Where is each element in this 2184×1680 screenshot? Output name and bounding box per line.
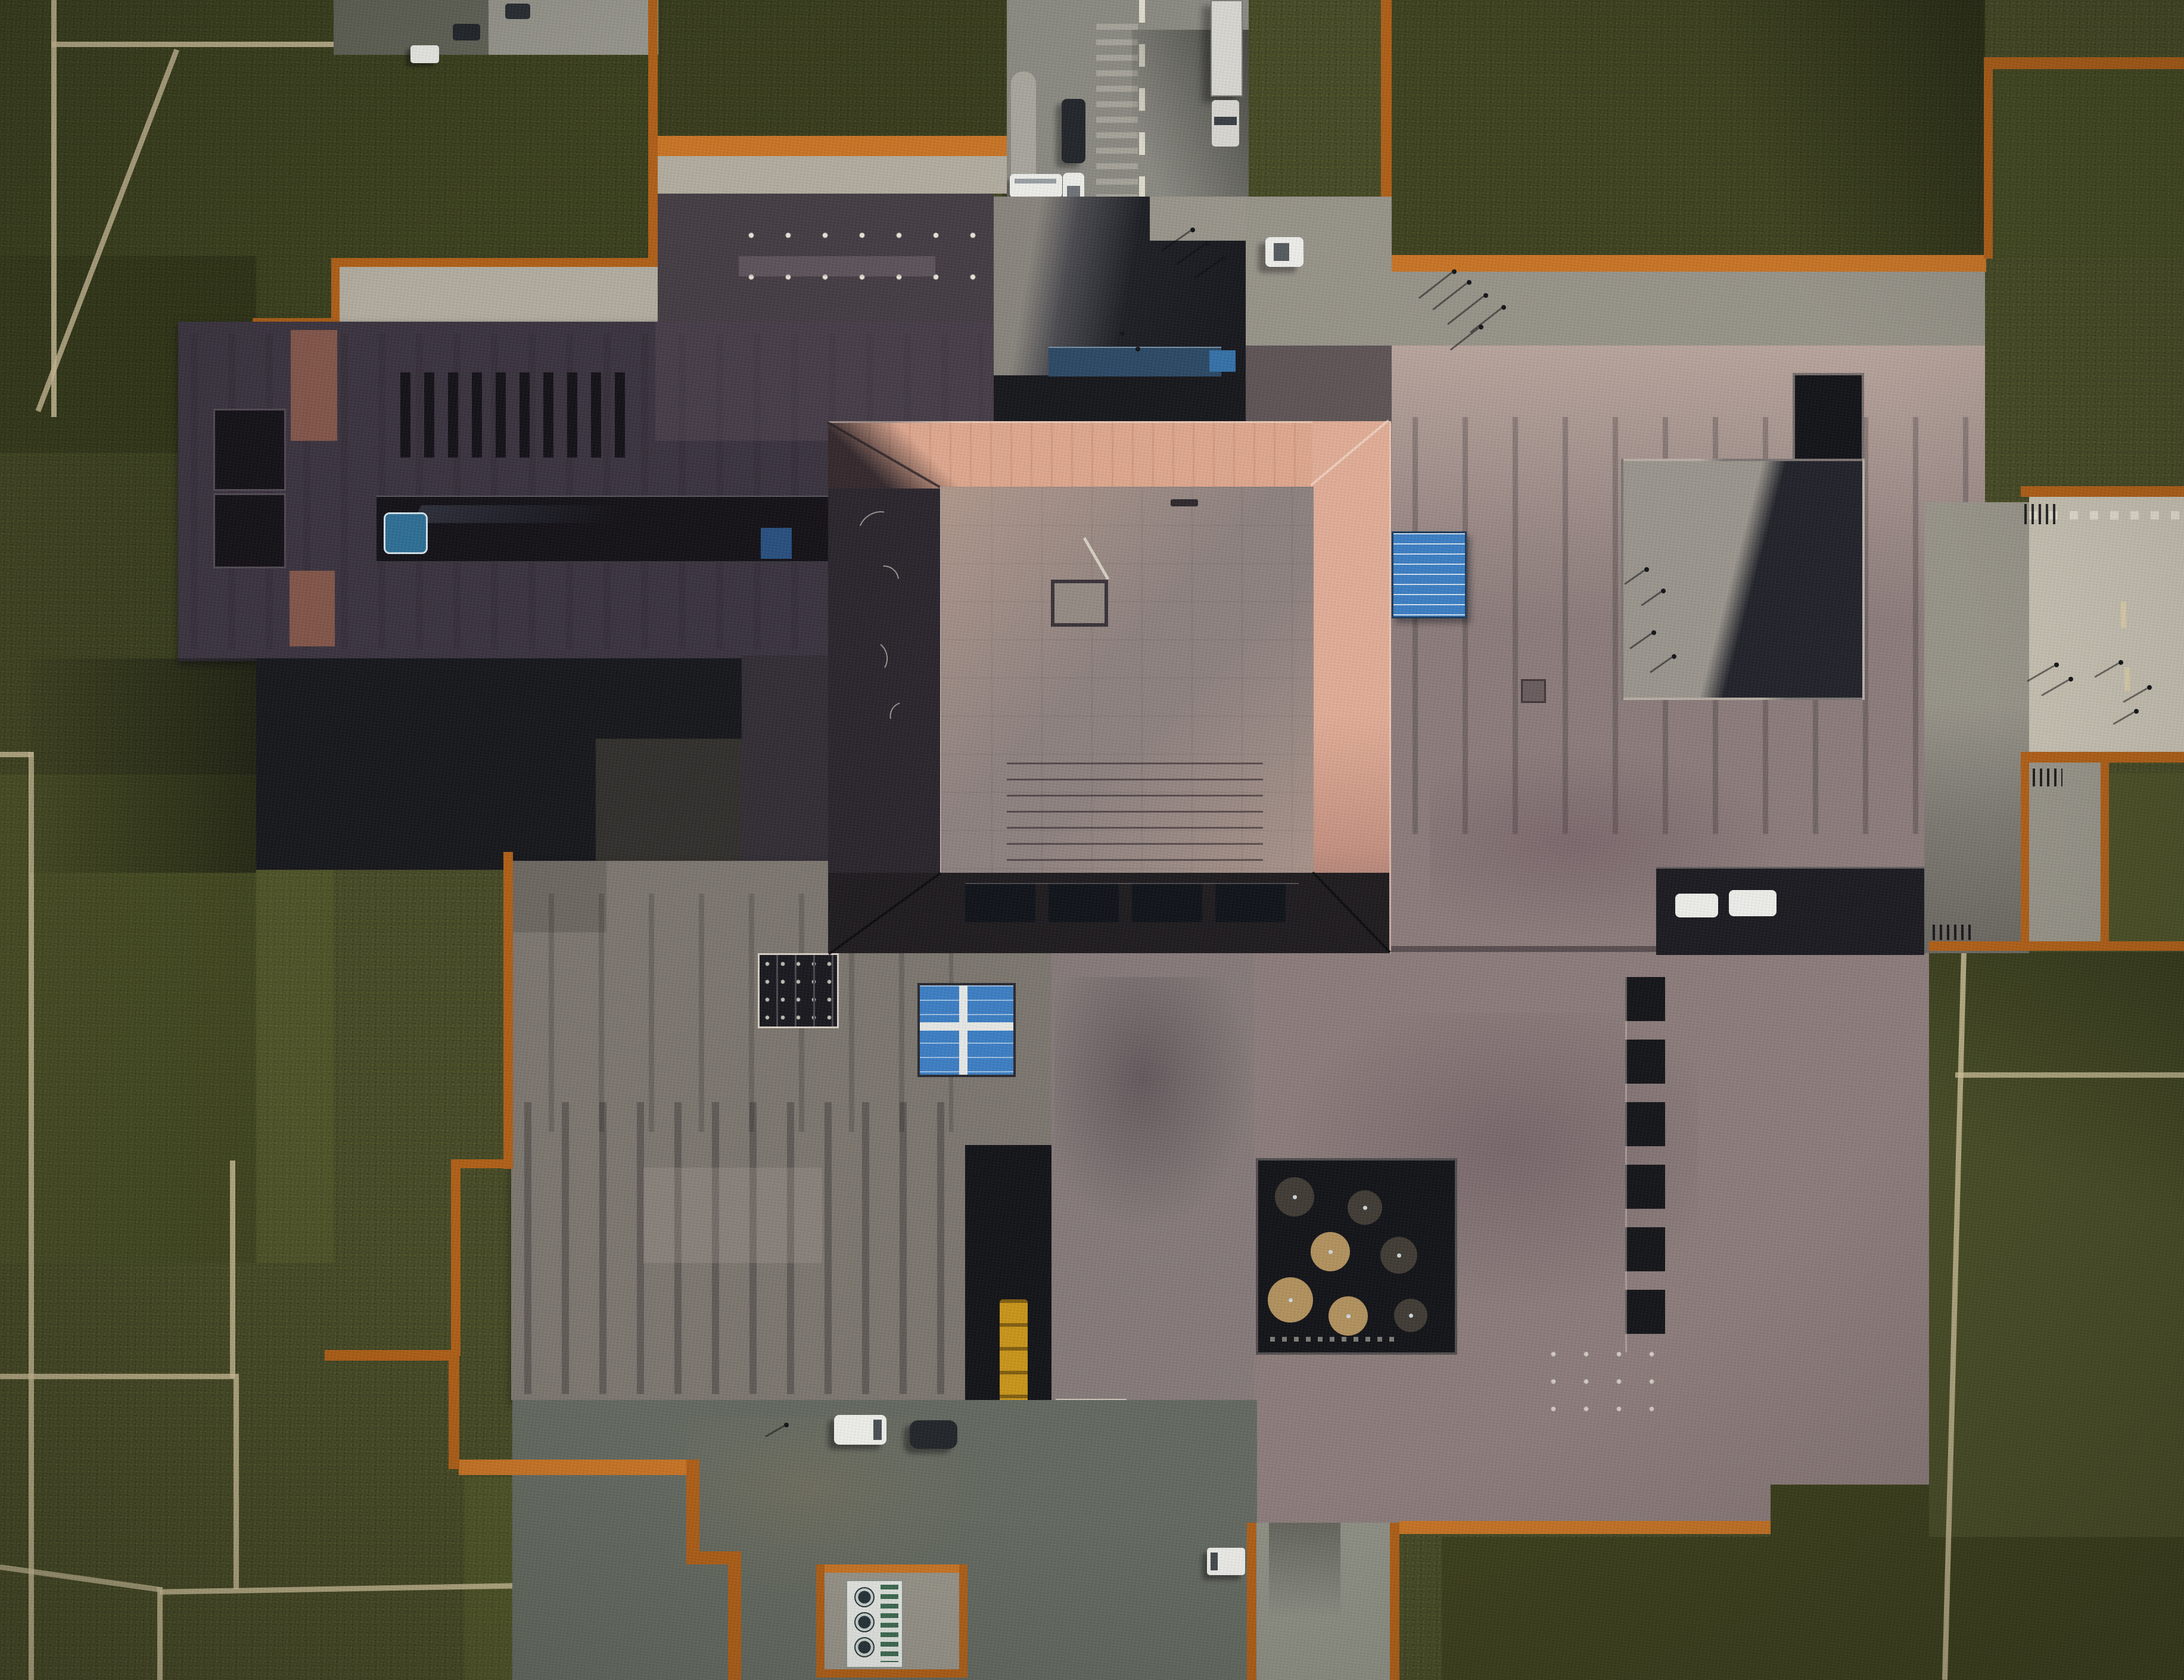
accent-brown-panel [290,571,335,646]
tree-canopy [1329,1296,1368,1336]
pavilion-joint-dashes [1007,763,1263,864]
footpath-line [0,1374,234,1379]
person [1452,269,1457,274]
corten-edge [2021,763,2029,941]
footpath-line [29,752,34,1680]
vehicle-white-bus [1010,174,1062,198]
van-windshield [873,1420,882,1440]
plaza-strip-west [340,267,658,322]
person [1205,241,1209,246]
corten-edge [1984,57,1993,259]
person [1483,293,1488,298]
vehicle-truck-trailer [1211,0,1243,97]
corten-edge [340,258,658,267]
roof-vent-slots [400,372,639,458]
rivet-dots-se2 [1537,1340,1668,1412]
sw-wing-light-patch [643,1168,822,1263]
plaza-strip-ne-long [1392,272,1985,346]
person [1479,325,1483,329]
courtyard-grate [1270,1337,1401,1342]
field-north-left [660,0,1007,136]
corten-edge [503,852,513,1169]
railing-comb [2033,769,2062,786]
north-block-dots [733,214,983,292]
field-se-step [1771,1485,1929,1539]
corten-edge-bright [1399,1521,1771,1534]
footpath-line [234,1374,239,1589]
corten-edge [1984,57,2184,69]
footpath-line [1955,1072,2184,1078]
vehicle-dark-sedan [1062,99,1085,163]
corten-edge-bright [459,1460,698,1475]
north-block-light-plank [739,256,935,276]
corten-edge [449,1350,459,1469]
hatchback-window [1274,243,1289,261]
dark-grid-skylight [758,953,839,1028]
person [1672,654,1676,659]
person [2118,660,2123,665]
courtyard-floor-patch [596,739,742,870]
tree-canopy [1275,1177,1314,1217]
person [1651,630,1656,635]
person [1467,280,1471,285]
canyon-floor [994,375,1246,421]
hvac-fan [854,1637,875,1657]
person [2147,685,2152,690]
trench-glass-glint [413,505,755,523]
footpath-line [230,1161,235,1378]
field-east-shade [1929,952,2184,1250]
walkway-marking [2121,602,2126,628]
person [1120,331,1125,336]
courtyard-cast-shadow [30,658,256,873]
canyon-glass-cell [1209,350,1236,372]
corten-pit-frame [816,1564,967,1573]
corten-edge [2101,763,2109,941]
tree-canopy [1380,1237,1417,1274]
person [2054,662,2059,667]
tree-courtyard [1256,1158,1457,1355]
trench-blue-canopy [384,512,428,554]
corten-edge-bright [1381,255,1986,272]
footpath-line [157,1587,163,1680]
canyon-bridge [1150,197,1246,241]
se-connector-stain [1054,977,1251,1227]
hvac-pipes [881,1585,898,1662]
vehicle-white-car-notch [1729,890,1777,916]
corten-edge [1247,1523,1256,1680]
corten-edge [1929,941,2184,951]
person [1644,567,1649,572]
person [1221,256,1226,261]
blue-skylight-east [1392,531,1467,618]
accent-brown-panel [291,330,337,441]
canyon-glass-band [1049,347,1221,377]
footpath-line [0,1564,160,1592]
person [1661,589,1666,593]
tree-canopy [1394,1299,1427,1332]
corten-edge [648,0,658,262]
pavilion-small-object [1171,499,1198,506]
corten-edge [2021,486,2184,497]
field-southeast [1442,1537,2184,1680]
corten-edge [451,1159,461,1356]
aerial-photo-canvas [0,0,2184,1680]
pavilion-skylight-row [965,883,1299,922]
walkway-stub [2029,763,2101,942]
corten-edge [2021,752,2184,763]
pavilion-north-eave [828,421,1389,489]
bus-roof-stripe [1015,179,1056,183]
plaza-strip-northeast [1246,197,1392,346]
tree-canopy [1268,1277,1313,1323]
field-northeast-shadow [1698,0,1985,257]
footpath-line [51,0,57,417]
person [784,1423,789,1427]
stair-slot-column [1625,977,1665,1352]
tree-canopy [1348,1190,1382,1225]
corten-pit-frame [816,1564,825,1678]
ne-courtyard-slot [1793,373,1864,472]
corten-edge [1390,1523,1399,1680]
walkway-marking [2124,667,2130,691]
corten-pit-frame [959,1564,967,1678]
person [1135,347,1140,351]
blue-skylight-south [917,983,1016,1077]
east-courtyard-floor [1924,502,2029,953]
railing-comb [2024,504,2060,524]
roof-opening [213,493,286,568]
person [2134,709,2139,714]
vehicle-white-car-notch [1675,894,1718,917]
vehicle-dark-car-apron [910,1420,957,1449]
plaza-strip-north [658,156,1007,194]
tree-canopy [1311,1232,1350,1271]
pavilion-roof-hatch [1051,580,1108,627]
trench-blue-panel [761,528,792,559]
railing-comb [1933,925,1974,940]
south-path-stain [1269,1523,1340,1642]
hvac-fan [854,1587,875,1607]
vehicle-white-van-nw [410,45,439,63]
roof-opening [213,409,286,491]
truck-windshield [1214,117,1237,125]
ne-courtyard-main [1621,459,1865,700]
field-ne-corner [1993,70,2184,259]
corten-edge [325,1350,459,1361]
east-walkway [2029,497,2184,752]
hvac-fan [854,1612,875,1632]
vehicle-dark-car-nw [453,24,480,41]
truck-cab-stripe [1211,1553,1218,1570]
roof-vent-square [1521,679,1546,703]
person [2068,677,2073,682]
vehicle-dark-car-nw2 [505,4,530,19]
corten-pit-frame [816,1669,967,1678]
corten-edge [728,1551,741,1680]
person [1501,305,1506,310]
corten-edge [686,1460,699,1564]
field-east-mid [2109,773,2184,942]
corten-edge-bright [658,136,1007,156]
footpath-line [0,752,33,757]
person [1190,228,1195,232]
east-wing-nw-dark [1246,346,1392,423]
